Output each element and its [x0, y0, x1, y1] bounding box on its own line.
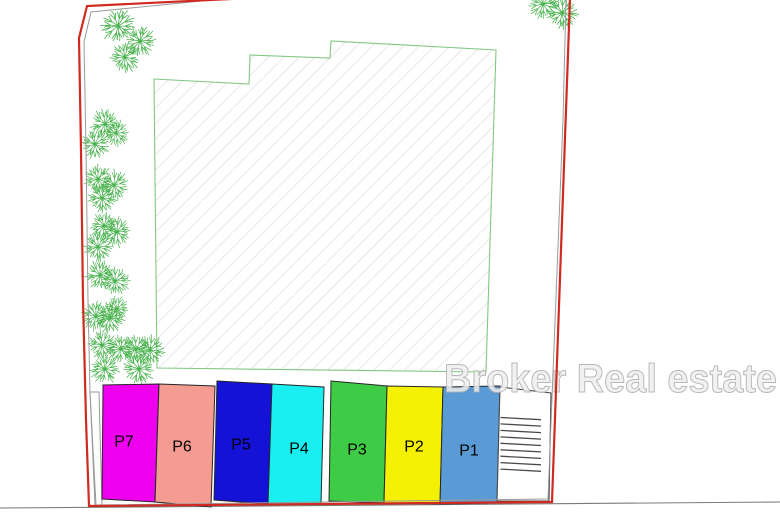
svg-text:P1: P1	[459, 443, 479, 460]
svg-text:P5: P5	[231, 437, 251, 454]
svg-text:P7: P7	[114, 434, 134, 451]
svg-text:P3: P3	[347, 442, 367, 459]
svg-text:P6: P6	[172, 439, 192, 456]
svg-text:Broker Real estate: Broker Real estate	[444, 357, 777, 401]
svg-text:P4: P4	[289, 441, 309, 458]
svg-text:P2: P2	[404, 439, 424, 456]
